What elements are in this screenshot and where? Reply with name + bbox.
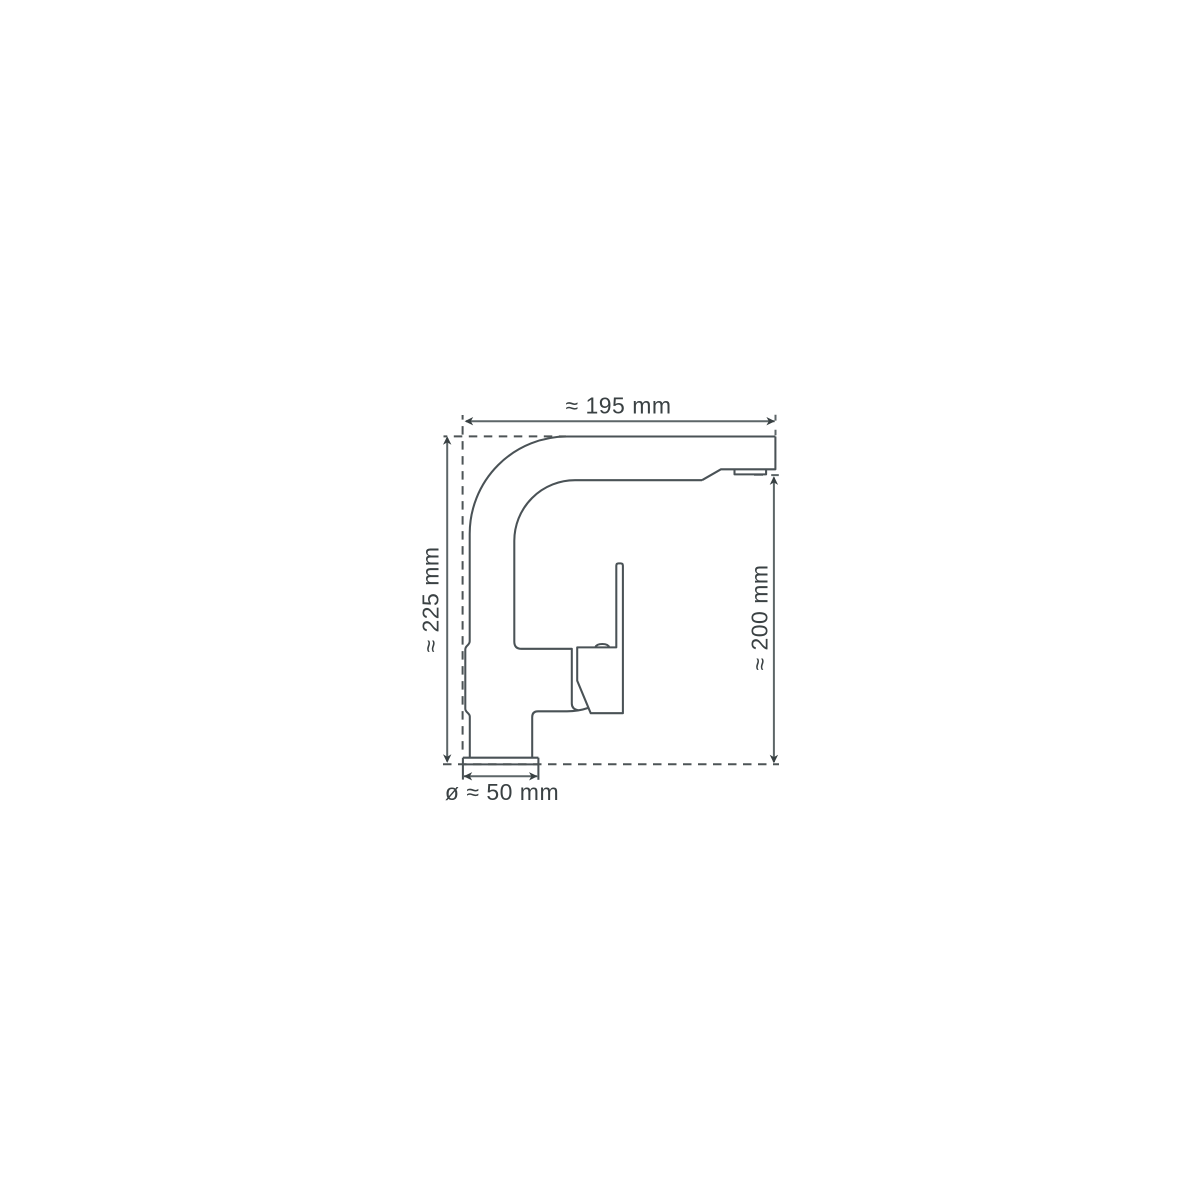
svg-text:≈ 195 mm: ≈ 195 mm bbox=[565, 393, 671, 419]
svg-text:≈ 225 mm: ≈ 225 mm bbox=[418, 546, 444, 652]
svg-text:ø ≈ 50 mm: ø ≈ 50 mm bbox=[445, 779, 559, 805]
svg-text:≈ 200 mm: ≈ 200 mm bbox=[747, 564, 773, 670]
